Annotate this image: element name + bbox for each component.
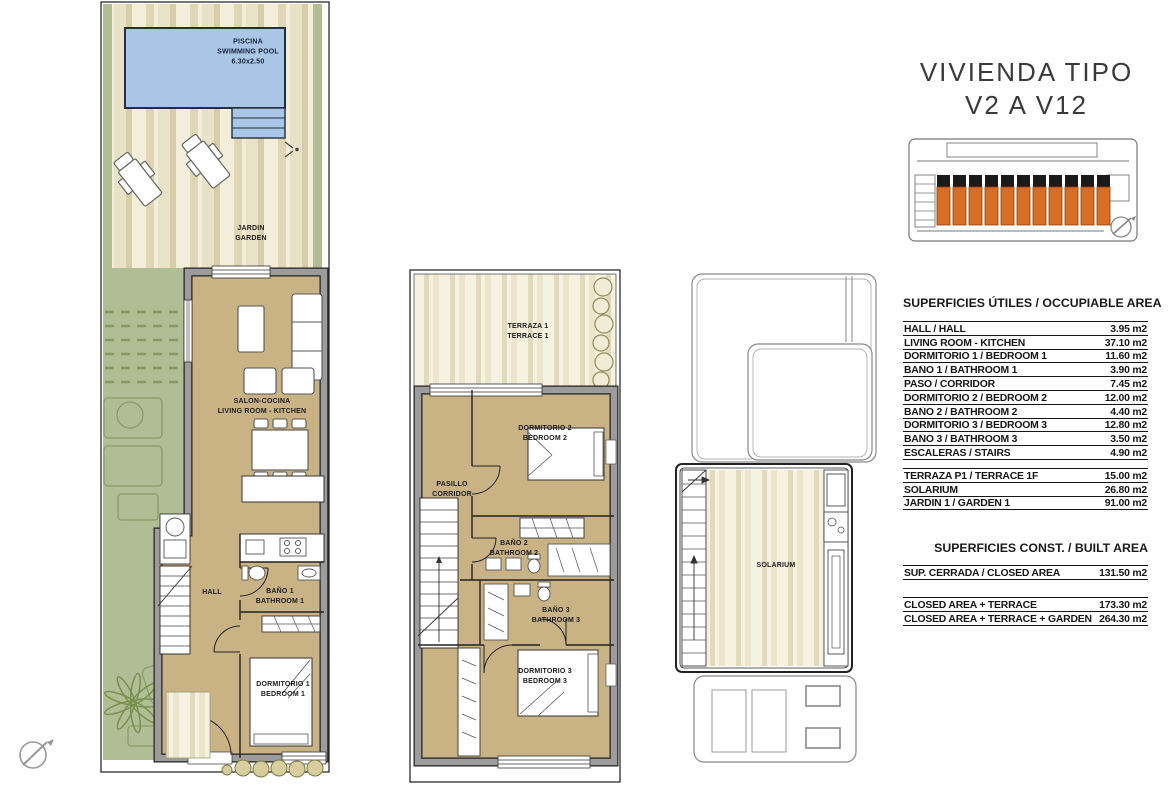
table-row: TERRAZA P1 / TERRACE 1F15.00 m2 (903, 469, 1148, 483)
table-row: SOLARIUM26.80 m2 (903, 483, 1148, 497)
niche (606, 664, 616, 686)
stairs (682, 470, 709, 666)
corridor-label: PASILLO CORRIDOR (432, 480, 472, 500)
table-row: DORMITORIO 3 / BEDROOM 312.80 m2 (903, 419, 1148, 433)
wardrobe (458, 648, 480, 756)
sliding-door (430, 384, 542, 396)
table-row: HALL / HALL3.95 m2 (903, 322, 1148, 336)
grill (824, 512, 848, 542)
living-room-label: SALON-COCINA LIVING ROOM - KITCHEN (218, 397, 307, 417)
window (184, 300, 192, 362)
totals-table: CLOSED AREA + TERRACE173.30 m2 CLOSED AR… (903, 597, 1148, 626)
pool-label: PISCINA SWIMMING POOL 6.30x2.50 (217, 37, 279, 66)
page-title: VIVIENDA TIPO V2 A V12 (903, 56, 1150, 121)
niche (606, 440, 616, 464)
bed (250, 658, 312, 746)
occupiable-area-header: SUPERFICIES ÚTILES / OCCUPIABLE AREA (903, 296, 1148, 310)
table-row: BAÑO 2 / BATHROOM 24.40 m2 (903, 405, 1148, 419)
bathroom1-label: BAÑO 1 BATHROOM 1 (256, 587, 305, 607)
table-row: SUP. CERRADA / CLOSED AREA131.50 m2 (903, 566, 1148, 580)
counter (828, 550, 844, 654)
bedroom3-label: DORMITORIO 3 BEDROOM 3 (518, 667, 572, 687)
garden-label: JARDIN GARDEN (235, 224, 267, 244)
table-row: JARDIN 1 / GARDEN 191.00 m2 (903, 497, 1148, 511)
table-row: BAÑO 1 / BATHROOM 13.90 m2 (903, 363, 1148, 377)
dining-table (252, 430, 308, 470)
pillow (254, 734, 308, 744)
sofa (292, 294, 322, 380)
table-row: ESCALERAS / STAIRS4.90 m2 (903, 446, 1148, 460)
outdoor-kitchen (824, 470, 848, 666)
toilet (538, 587, 550, 601)
table-row: PASO / CORRIDOR7.45 m2 (903, 377, 1148, 391)
bedroom1-label: DORMITORIO 1 BEDROOM 1 (256, 680, 310, 700)
table-row: BAÑO 3 / BATHROOM 33.50 m2 (903, 432, 1148, 446)
bathroom3-label: BAÑO 3 BATHROOM 3 (532, 606, 581, 626)
table-row: DORMITORIO 1 / BEDROOM 111.60 m2 (903, 350, 1148, 364)
shower (548, 544, 610, 576)
exterior-area-table: TERRAZA P1 / TERRACE 1F15.00 m2 SOLARIUM… (903, 468, 1148, 510)
key-plan (909, 139, 1137, 241)
pillow (594, 432, 603, 476)
solarium-plan (676, 274, 876, 762)
built-area-header: SUPERFICIES CONST. / BUILT AREA (903, 541, 1148, 555)
north-compass-icon (20, 739, 54, 768)
bathroom2-label: BAÑO 2 BATHROOM 2 (490, 539, 539, 559)
ground-floor-plan (101, 2, 329, 777)
table-row: CLOSED AREA + TERRACE173.30 m2 (903, 598, 1148, 612)
bedroom2-label: DORMITORIO 2 BEDROOM 2 (518, 424, 572, 444)
terrace1-label: TERRAZA 1 TERRACE 1 (507, 322, 548, 342)
toilet (249, 566, 265, 580)
pillow (588, 654, 598, 712)
hall-label: HALL (202, 588, 221, 598)
closed-area-table: SUP. CERRADA / CLOSED AREA131.50 m2 (903, 565, 1148, 580)
table-row: LIVING ROOM - KITCHEN37.10 m2 (903, 336, 1148, 350)
solarium-label: SOLARIUM (757, 561, 796, 571)
first-floor-plan (410, 270, 620, 782)
sliding-door (212, 266, 270, 278)
plan-sheet: PISCINA SWIMMING POOL 6.30x2.50 JARDIN G… (0, 0, 1170, 785)
table-row: CLOSED AREA + TERRACE + GARDEN264.30 m2 (903, 612, 1148, 626)
window (498, 756, 590, 768)
table-row: DORMITORIO 2 / BEDROOM 212.00 m2 (903, 391, 1148, 405)
sink (827, 474, 845, 506)
stairs (158, 566, 192, 654)
entry-path (166, 692, 210, 758)
highlighted-units (937, 175, 1110, 225)
stairs (418, 498, 458, 648)
occupiable-area-table: HALL / HALL3.95 m2 LIVING ROOM - KITCHEN… (903, 321, 1148, 460)
toilet (528, 559, 540, 573)
pool-steps (232, 108, 285, 138)
